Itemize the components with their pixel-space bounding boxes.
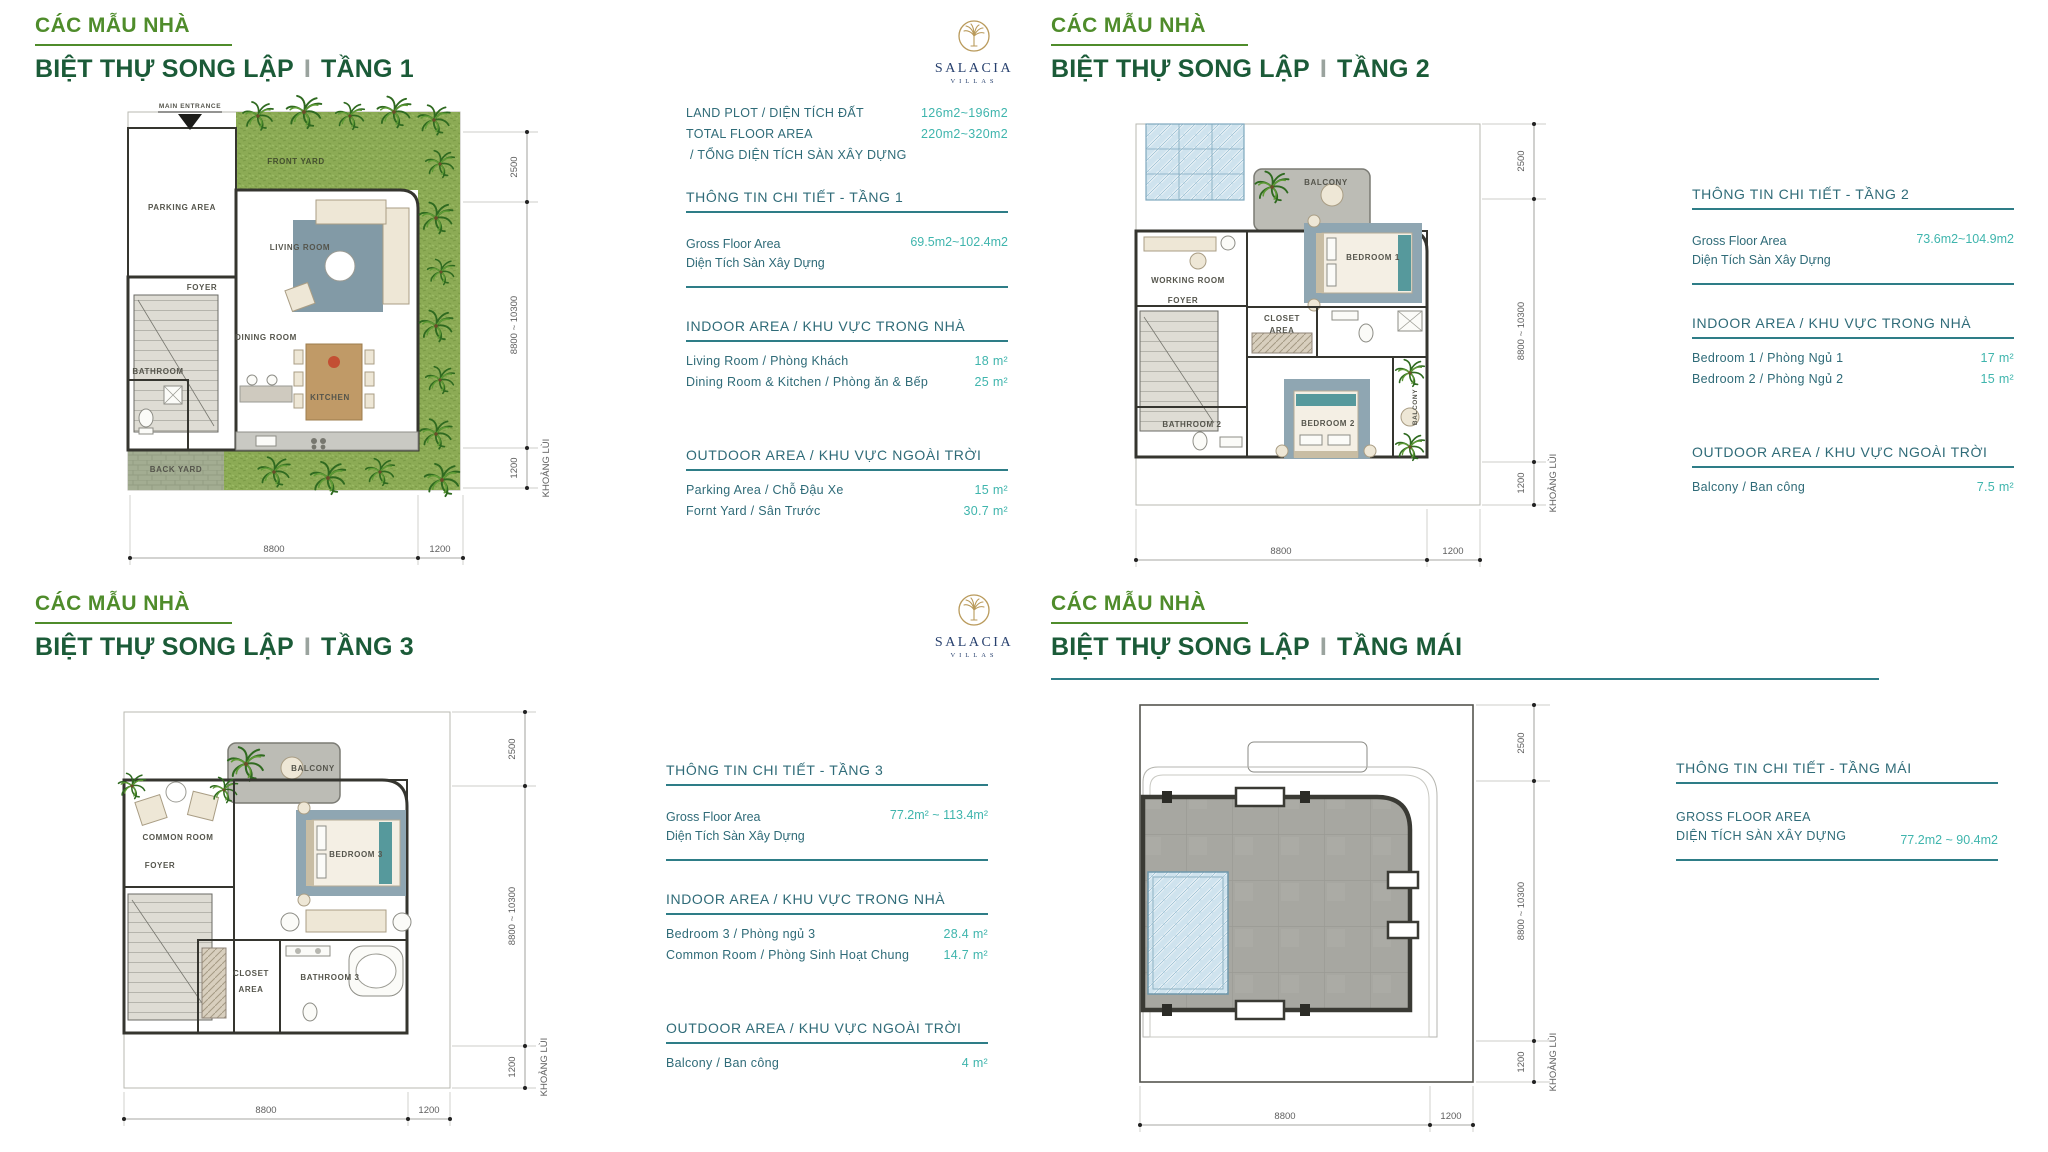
summary-label: / TỔNG DIỆN TÍCH SÀN XÂY DỰNG — [686, 148, 907, 162]
gfa-labels: Gross Floor Area Diện Tích Sàn Xây Dựng — [686, 235, 825, 274]
room-label-dining: DINING ROOM — [235, 333, 297, 342]
header-underline-rule — [1051, 678, 1879, 680]
title-floor: TẦNG 3 — [321, 633, 414, 661]
room-label-front-yard: FRONT YARD — [267, 157, 325, 166]
title-separator: I — [304, 633, 311, 661]
room-label-closet-area: AREA — [238, 985, 263, 994]
room-label-closet: CLOSET — [233, 969, 269, 978]
indoor-title: INDOOR AREA / KHU VỰC TRONG NHÀ — [1692, 315, 2014, 339]
title-floor: TẦNG MÁI — [1337, 633, 1462, 661]
gfa-label-vi: Diện Tích Sàn Xây Dựng — [686, 254, 825, 273]
kicker-label: CÁC MẪU NHÀ — [1051, 592, 1248, 624]
area-label: Balcony / Ban công — [1692, 480, 1805, 494]
area-value: 28.4 m² — [936, 927, 988, 941]
summary-row: LAND PLOT / DIỆN TÍCH ĐẤT 126m2~196m2 — [686, 106, 1008, 120]
gfa-labels: Gross Floor Area Diện Tích Sàn Xây Dựng — [666, 808, 805, 847]
summary-row: / TỔNG DIỆN TÍCH SÀN XÂY DỰNG — [686, 148, 1008, 162]
logo-name: SALACIA — [926, 61, 1022, 77]
floor-plan-tang-mai: 2500 8800 ~ 10300 1200 KHOẢNG LÙI 8800 1… — [1108, 690, 1578, 1150]
summary-label: TOTAL FLOOR AREA — [686, 127, 813, 141]
area-row: Bedroom 2 / Phòng Ngủ 2 15 m² — [1692, 372, 2014, 386]
area-value: 15 m² — [967, 483, 1008, 497]
area-value: 25 m² — [967, 375, 1008, 389]
area-row: Parking Area / Chỗ Đậu Xe 15 m² — [686, 483, 1008, 497]
area-row: Balcony / Ban công 4 m² — [666, 1056, 988, 1070]
dim-note-khoang-lui: KHOẢNG LÙI — [1547, 454, 1559, 513]
room-label-foyer: FOYER — [145, 861, 176, 870]
area-label: Parking Area / Chỗ Đậu Xe — [686, 483, 844, 497]
info-panel-tang-mai: THÔNG TIN CHI TIẾT - TẦNG MÁI GROSS FLOO… — [1676, 760, 1998, 861]
room-label-bedroom2: BEDROOM 2 — [1301, 419, 1355, 428]
title-separator: I — [304, 55, 311, 83]
title-floor: TẦNG 1 — [321, 55, 414, 83]
room-label-back-yard: BACK YARD — [150, 465, 203, 474]
summary-label: LAND PLOT / DIỆN TÍCH ĐẤT — [686, 106, 864, 120]
dim-right-2500: 2500 — [1516, 732, 1527, 753]
gfa-label-vi: Diện Tích Sàn Xây Dựng — [1692, 251, 1831, 270]
kicker-label: CÁC MẪU NHÀ — [1051, 14, 1248, 46]
room-label-living: LIVING ROOM — [270, 243, 330, 252]
room-label-foyer: FOYER — [1168, 296, 1199, 305]
area-label: Balcony / Ban công — [666, 1056, 779, 1070]
title-series: BIỆT THỰ SONG LẬP — [35, 55, 294, 83]
area-row: Living Room / Phòng Khách 18 m² — [686, 354, 1008, 368]
room-label-bathroom3: BATHROOM 3 — [300, 973, 359, 982]
page-title: BIỆT THỰ SONG LẬPITẦNG MÁI — [1051, 633, 1462, 662]
area-label: Living Room / Phòng Khách — [686, 354, 848, 368]
floor-plan-tang-3: BALCONY COMMON ROOM FOYER BEDROOM 3 CLOS… — [96, 690, 566, 1150]
salacia-logo: SALACIA VILLAS — [926, 18, 1022, 85]
area-row: Balcony / Ban công 7.5 m² — [1692, 480, 2014, 494]
indoor-title: INDOOR AREA / KHU VỰC TRONG NHÀ — [666, 891, 988, 915]
summary-row: TOTAL FLOOR AREA 220m2~320m2 — [686, 127, 1008, 141]
page-title: BIỆT THỰ SONG LẬPITẦNG 2 — [1051, 55, 1430, 84]
gfa-value: 77.2m2 ~ 90.4m2 — [1892, 833, 1998, 847]
area-row: Common Room / Phòng Sinh Hoạt Chung 14.7… — [666, 948, 988, 962]
room-label-balcony: BALCONY — [1304, 178, 1348, 187]
dim-note-khoang-lui: KHOẢNG LÙI — [538, 1038, 550, 1097]
area-row: Fornt Yard / Sân Trước 30.7 m² — [686, 504, 1008, 518]
palm-tree-logo-icon — [956, 592, 992, 628]
floor-plan-tang-2: BALCONY WORKING ROOM FOYER BEDROOM 1 CLO… — [1108, 98, 1588, 578]
area-label: Dining Room & Kitchen / Phòng ăn & Bếp — [686, 375, 928, 389]
header-tang-2: CÁC MẪU NHÀ BIỆT THỰ SONG LẬPITẦNG 2 — [1051, 14, 1430, 84]
room-label-balcony: BALCONY — [291, 764, 335, 773]
dim-bottom-1200: 1200 — [429, 544, 450, 555]
gfa-block: Gross Floor Area Diện Tích Sàn Xây Dựng … — [666, 808, 988, 861]
gfa-labels: Gross Floor Area Diện Tích Sàn Xây Dựng — [1692, 232, 1831, 271]
logo-subtitle: VILLAS — [926, 78, 1022, 85]
logo-subtitle: VILLAS — [926, 652, 1022, 659]
title-floor: TẦNG 2 — [1337, 55, 1430, 83]
area-label: Fornt Yard / Sân Trước — [686, 504, 821, 518]
gfa-label-en: GROSS FLOOR AREA — [1676, 808, 1846, 827]
title-separator: I — [1320, 55, 1327, 83]
dim-right-1200: 1200 — [1516, 472, 1527, 493]
area-label: Bedroom 3 / Phòng ngủ 3 — [666, 927, 815, 941]
detail-title: THÔNG TIN CHI TIẾT - TẦNG 2 — [1692, 186, 2014, 210]
dim-right-main: 8800 ~ 10300 — [507, 887, 518, 945]
dim-right-main: 8800 ~ 10300 — [1516, 302, 1527, 360]
summary-value: 126m2~196m2 — [913, 106, 1008, 120]
gfa-label-en: Gross Floor Area — [666, 808, 805, 827]
outdoor-title: OUTDOOR AREA / KHU VỰC NGOÀI TRỜI — [666, 1020, 988, 1044]
dim-right-2500: 2500 — [509, 156, 520, 177]
title-series: BIỆT THỰ SONG LẬP — [1051, 633, 1310, 661]
detail-title: THÔNG TIN CHI TIẾT - TẦNG 1 — [686, 189, 1008, 213]
room-label-main-entrance: MAIN ENTRANCE — [159, 103, 221, 110]
gfa-label-vi: DIỆN TÍCH SÀN XÂY DỰNG — [1676, 827, 1846, 846]
gfa-label-vi: Diện Tích Sàn Xây Dựng — [666, 827, 805, 846]
room-label-closet: CLOSET — [1264, 314, 1300, 323]
area-value: 30.7 m² — [956, 504, 1008, 518]
room-label-foyer: FOYER — [187, 283, 218, 292]
dim-bottom-8800: 8800 — [255, 1105, 276, 1116]
room-label-common-room: COMMON ROOM — [142, 833, 213, 842]
dim-note-khoang-lui: KHOẢNG LÙI — [1547, 1033, 1559, 1092]
page-title: BIỆT THỰ SONG LẬPITẦNG 3 — [35, 633, 414, 662]
area-value: 17 m² — [1973, 351, 2014, 365]
area-row: Bedroom 1 / Phòng Ngủ 1 17 m² — [1692, 351, 2014, 365]
area-row: Bedroom 3 / Phòng ngủ 3 28.4 m² — [666, 927, 988, 941]
gfa-label-en: Gross Floor Area — [686, 235, 825, 254]
kicker-label: CÁC MẪU NHÀ — [35, 592, 232, 624]
room-label-working-room: WORKING ROOM — [1151, 276, 1225, 285]
area-label: Bedroom 1 / Phòng Ngủ 1 — [1692, 351, 1843, 365]
gfa-value: 77.2m² ~ 113.4m² — [882, 808, 988, 822]
brochure-page: { "brand": {"name": "SALACIA", "sub": "V… — [0, 0, 2048, 1152]
room-label-closet-area: AREA — [1269, 326, 1294, 335]
page-title: BIỆT THỰ SONG LẬPITẦNG 1 — [35, 55, 414, 84]
gfa-value: 69.5m2~102.4m2 — [902, 235, 1008, 249]
dim-right-main: 8800 ~ 10300 — [509, 296, 520, 354]
area-row: Dining Room & Kitchen / Phòng ăn & Bếp 2… — [686, 375, 1008, 389]
dim-right-1200: 1200 — [509, 457, 520, 478]
gfa-label-en: Gross Floor Area — [1692, 232, 1831, 251]
dim-right-1200: 1200 — [1516, 1051, 1527, 1072]
area-label: Common Room / Phòng Sinh Hoạt Chung — [666, 948, 909, 962]
area-value: 7.5 m² — [1969, 480, 2014, 494]
room-label-kitchen: KITCHEN — [310, 393, 350, 402]
area-value: 18 m² — [967, 354, 1008, 368]
outdoor-title: OUTDOOR AREA / KHU VỰC NGOÀI TRỜI — [686, 447, 1008, 471]
info-panel-tang-1: LAND PLOT / DIỆN TÍCH ĐẤT 126m2~196m2 TO… — [686, 106, 1008, 525]
dim-bottom-8800: 8800 — [1270, 546, 1291, 557]
room-label-bedroom1: BEDROOM 1 — [1346, 253, 1400, 262]
room-label-side-balcony: BALCONY — [1412, 389, 1419, 425]
dim-bottom-1200: 1200 — [1440, 1111, 1461, 1122]
area-value: 4 m² — [954, 1056, 988, 1070]
area-label: Bedroom 2 / Phòng Ngủ 2 — [1692, 372, 1843, 386]
gfa-labels: GROSS FLOOR AREA DIỆN TÍCH SÀN XÂY DỰNG — [1676, 808, 1846, 847]
gfa-block: Gross Floor Area Diện Tích Sàn Xây Dựng … — [1692, 232, 2014, 285]
gfa-value: 73.6m2~104.9m2 — [1908, 232, 2014, 246]
logo-name: SALACIA — [926, 635, 1022, 651]
detail-title: THÔNG TIN CHI TIẾT - TẦNG MÁI — [1676, 760, 1998, 784]
dim-bottom-1200: 1200 — [1442, 546, 1463, 557]
info-panel-tang-3: THÔNG TIN CHI TIẾT - TẦNG 3 Gross Floor … — [666, 762, 988, 1077]
salacia-logo: SALACIA VILLAS — [926, 592, 1022, 659]
indoor-title: INDOOR AREA / KHU VỰC TRONG NHÀ — [686, 318, 1008, 342]
header-tang-1: CÁC MẪU NHÀ BIỆT THỰ SONG LẬPITẦNG 1 — [35, 14, 414, 84]
room-label-bathroom: BATHROOM — [132, 367, 183, 376]
title-series: BIỆT THỰ SONG LẬP — [1051, 55, 1310, 83]
dim-bottom-8800: 8800 — [263, 544, 284, 555]
gfa-block: GROSS FLOOR AREA DIỆN TÍCH SÀN XÂY DỰNG … — [1676, 808, 1998, 861]
room-label-parking: PARKING AREA — [148, 203, 216, 212]
title-separator: I — [1320, 633, 1327, 661]
header-tang-3: CÁC MẪU NHÀ BIỆT THỰ SONG LẬPITẦNG 3 — [35, 592, 414, 662]
summary-value: 220m2~320m2 — [913, 127, 1008, 141]
dining-table — [306, 344, 362, 420]
area-value: 14.7 m² — [936, 948, 988, 962]
dim-bottom-8800: 8800 — [1274, 1111, 1295, 1122]
dim-right-main: 8800 ~ 10300 — [1516, 882, 1527, 940]
title-series: BIỆT THỰ SONG LẬP — [35, 633, 294, 661]
outdoor-title: OUTDOOR AREA / KHU VỰC NGOÀI TRỜI — [1692, 444, 2014, 468]
dim-bottom-1200: 1200 — [418, 1105, 439, 1116]
palm-tree-logo-icon — [956, 18, 992, 54]
dim-note-khoang-lui: KHOẢNG LÙI — [540, 439, 552, 498]
room-label-bedroom3: BEDROOM 3 — [329, 850, 383, 859]
detail-title: THÔNG TIN CHI TIẾT - TẦNG 3 — [666, 762, 988, 786]
dim-right-1200: 1200 — [507, 1056, 518, 1077]
header-tang-mai: CÁC MẪU NHÀ BIỆT THỰ SONG LẬPITẦNG MÁI — [1051, 592, 1462, 662]
area-value: 15 m² — [1973, 372, 2014, 386]
info-panel-tang-2: THÔNG TIN CHI TIẾT - TẦNG 2 Gross Floor … — [1692, 186, 2014, 501]
room-label-bathroom2: BATHROOM 2 — [1162, 420, 1221, 429]
dim-right-2500: 2500 — [507, 738, 518, 759]
floor-plan-tang-1: MAIN ENTRANCE PARKING AREA FRONT YARD LI… — [96, 86, 596, 586]
dim-right-2500: 2500 — [1516, 150, 1527, 171]
kicker-label: CÁC MẪU NHÀ — [35, 14, 232, 46]
gfa-block: Gross Floor Area Diện Tích Sàn Xây Dựng … — [686, 235, 1008, 288]
skylight — [1146, 124, 1244, 200]
roof-skylight — [1148, 872, 1228, 994]
